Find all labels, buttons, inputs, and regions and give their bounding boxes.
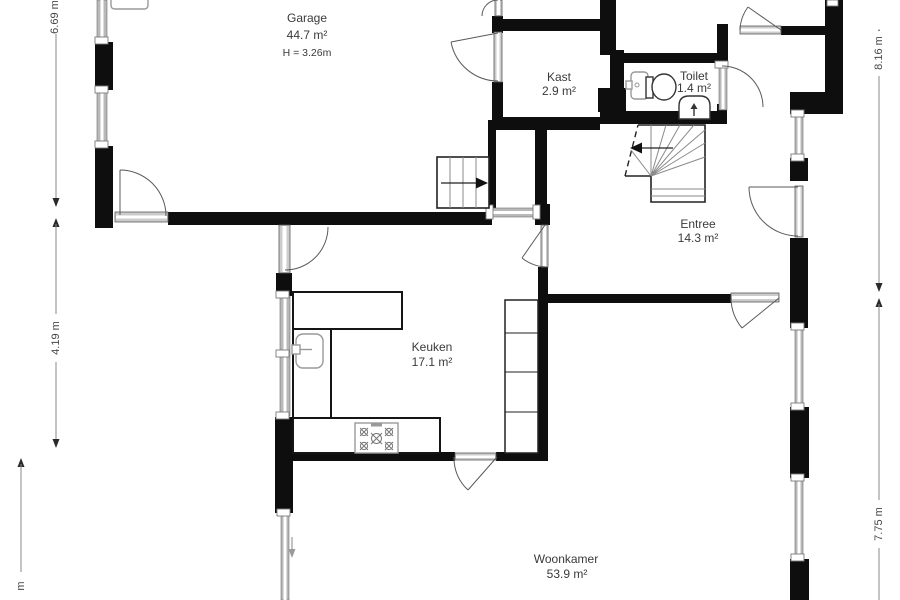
garage-height: H = 3.26m — [283, 47, 332, 59]
window — [490, 208, 537, 217]
kitchen-fixtures — [292, 292, 538, 453]
window — [97, 0, 107, 41]
kitchen-counter-top — [293, 292, 402, 329]
keuken-area: 17.1 m² — [412, 355, 453, 369]
stove — [355, 423, 398, 453]
dimension-left-lower: m — [15, 581, 27, 590]
window — [795, 328, 803, 407]
kast-area: 2.9 m² — [542, 84, 576, 98]
garage-label: Garage — [287, 11, 327, 25]
keuken-label: Keuken — [412, 340, 453, 354]
entrance-arrow — [289, 537, 296, 558]
fountain-basin — [679, 96, 710, 119]
dimension-left-middle: 4.19 m — [50, 321, 62, 355]
front-door — [749, 186, 803, 237]
keuken-woonkamer-door — [454, 453, 497, 490]
window — [795, 478, 803, 559]
window — [281, 513, 289, 600]
keuken-entree-door — [522, 225, 548, 267]
garage-door — [115, 170, 168, 222]
winder-stairs — [625, 125, 705, 202]
toilet-sink — [626, 72, 648, 99]
kitchen-sink — [292, 334, 323, 368]
floor-plan-svg: 6.69 m 4.19 m m 8.16 m 7.75 m Garage 44.… — [0, 0, 900, 600]
window — [97, 90, 107, 146]
entree-woonkamer-door — [731, 293, 779, 328]
toilet-area: 1.4 m² — [677, 81, 711, 95]
window — [719, 64, 727, 110]
floor-plan: 6.69 m 4.19 m m 8.16 m 7.75 m Garage 44.… — [0, 0, 900, 600]
tall-cabinet — [505, 300, 538, 453]
entree-top-door — [740, 7, 781, 34]
woonkamer-label: Woonkamer — [534, 552, 598, 566]
kast-door — [451, 32, 502, 82]
woonkamer-area: 53.9 m² — [547, 567, 588, 581]
dimension-right-lower: 7.75 m — [873, 507, 885, 541]
kast-label: Kast — [547, 70, 572, 84]
window — [795, 114, 803, 158]
toilet-door — [722, 66, 763, 107]
keuken-left-door — [279, 225, 328, 273]
entree-label: Entree — [680, 217, 716, 231]
entree-area: 14.3 m² — [678, 231, 719, 245]
garage-area: 44.7 m² — [287, 28, 328, 42]
dimension-left-upper: 6.69 m — [49, 0, 61, 34]
dimension-right-upper: 8.16 m — [873, 36, 885, 70]
top-cut-door — [482, 0, 502, 16]
straight-stairs — [437, 157, 489, 208]
wc — [646, 74, 676, 100]
garage-fixture — [111, 0, 148, 9]
